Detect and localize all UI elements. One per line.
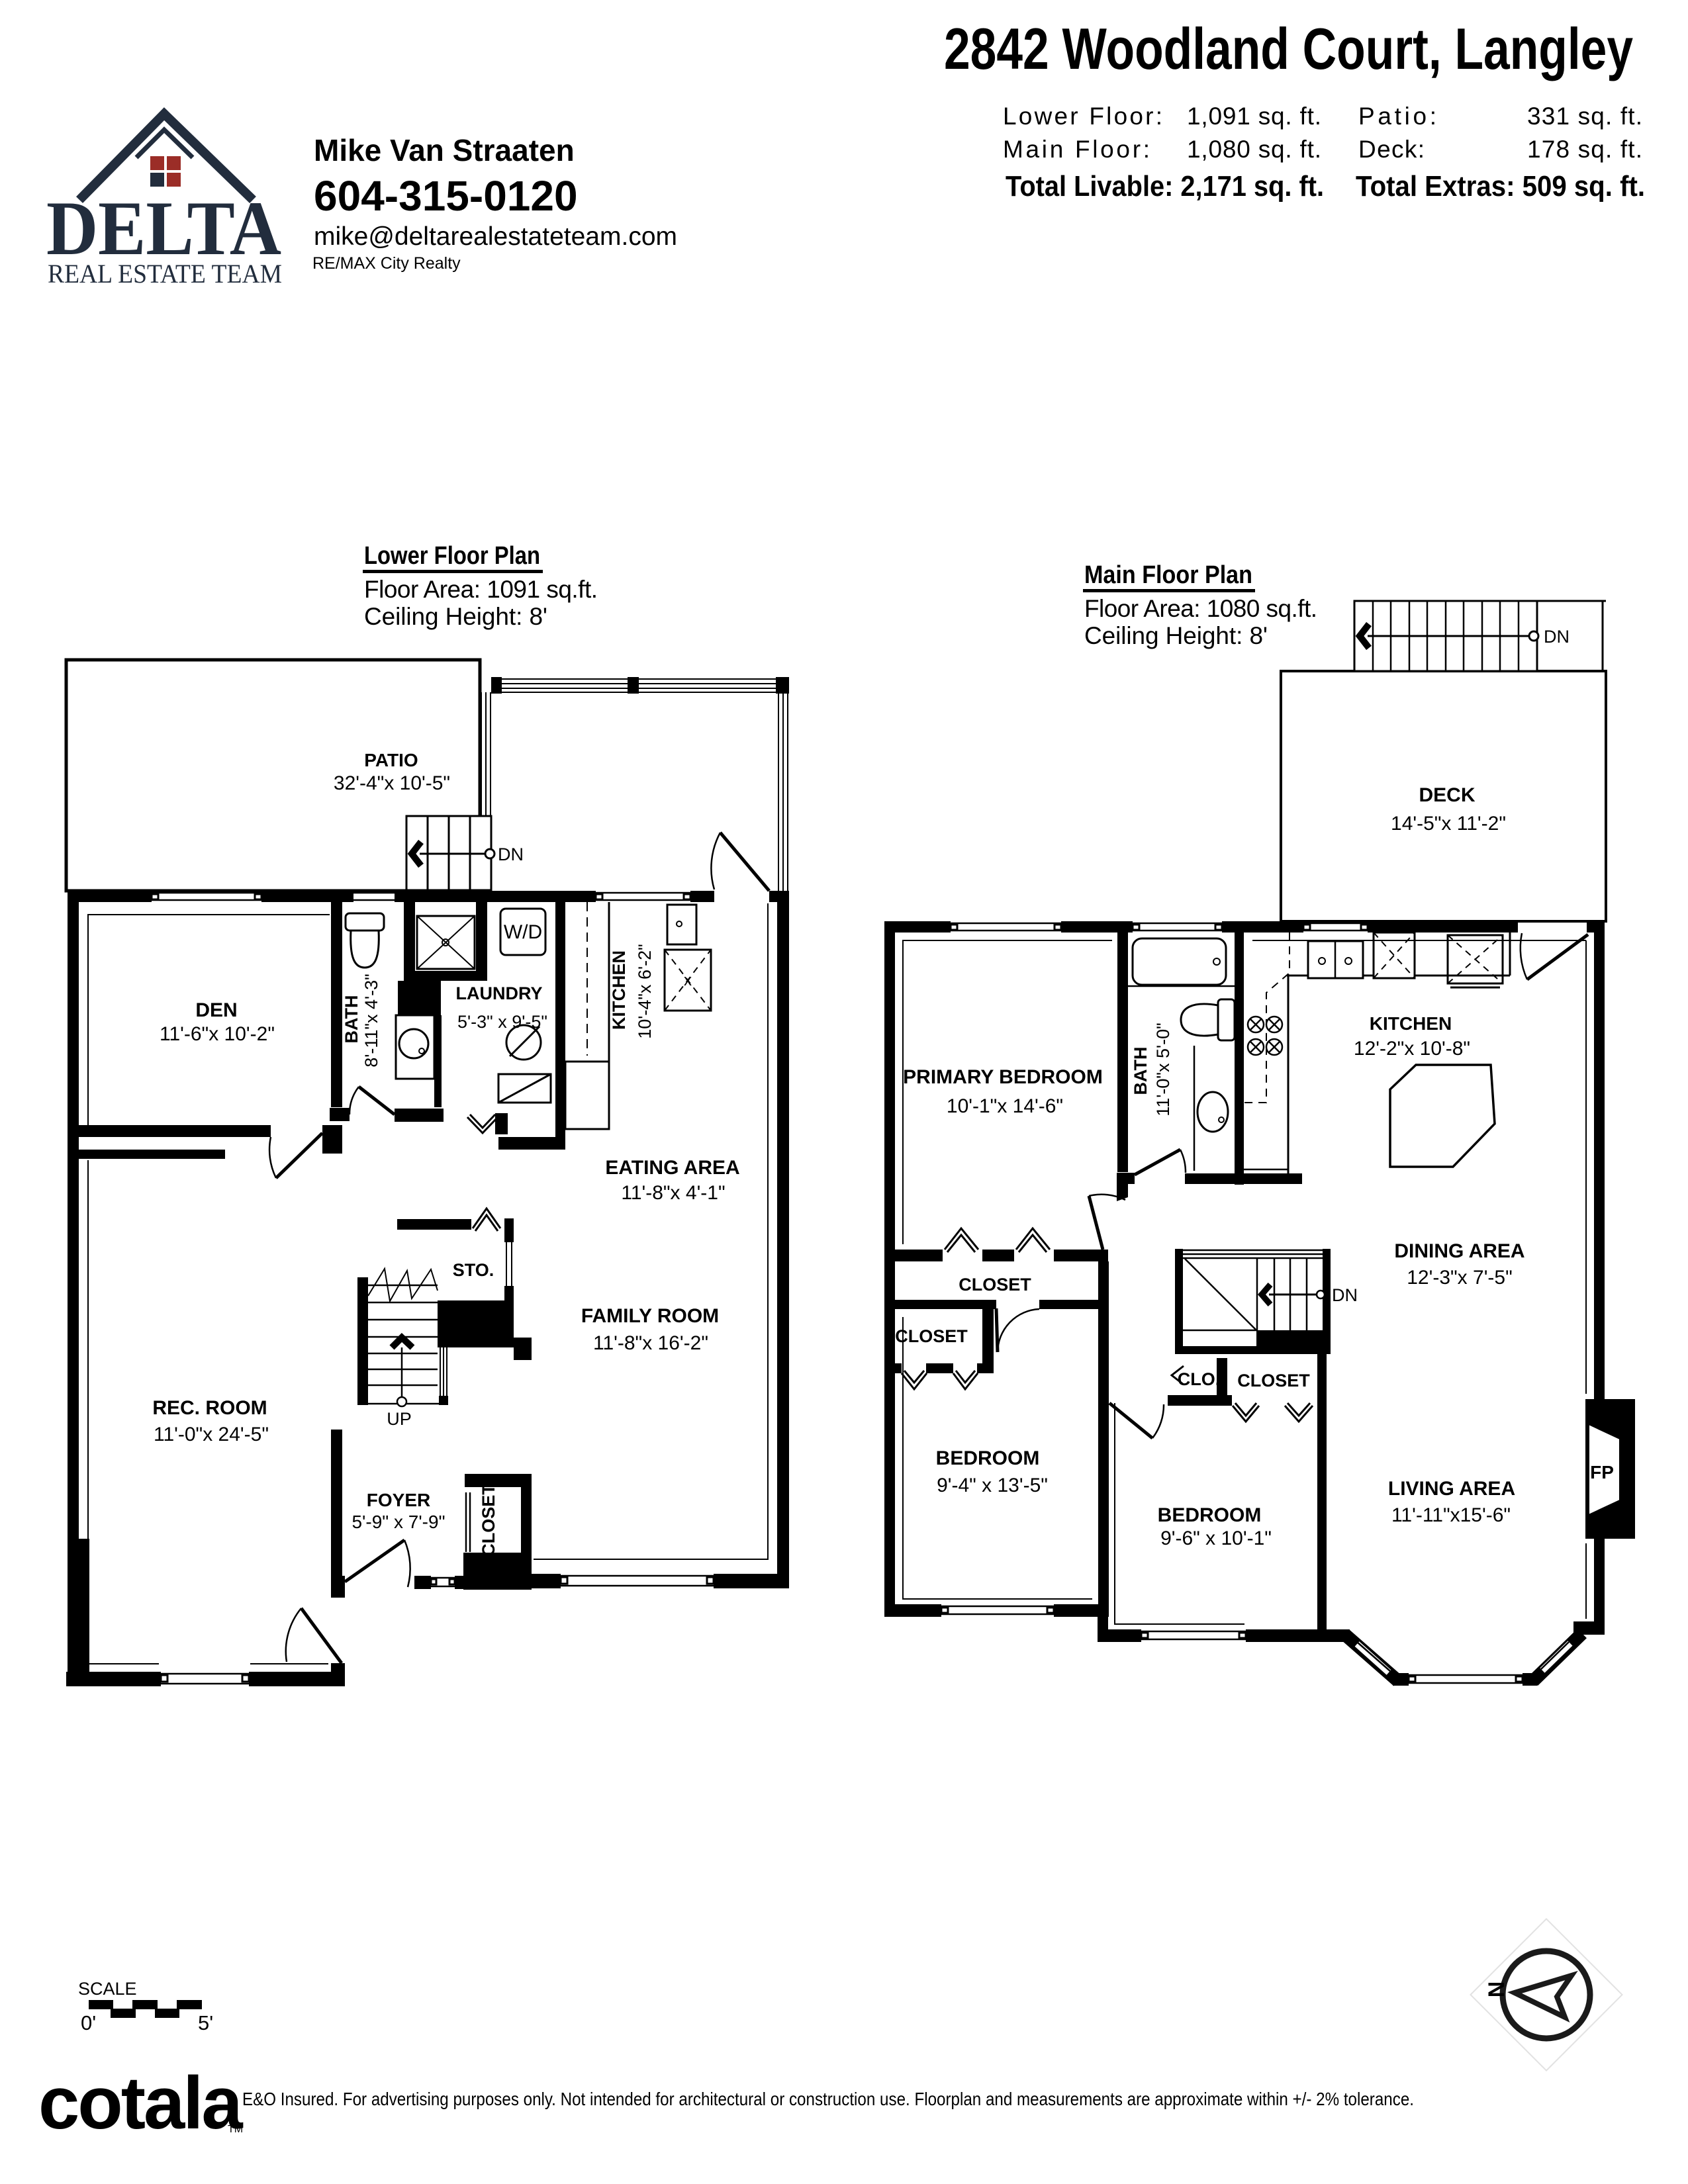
svg-text:9'-6" x 10'-1": 9'-6" x 10'-1" (1160, 1527, 1272, 1549)
svg-text:EATING AREA: EATING AREA (605, 1157, 739, 1179)
svg-text:DN: DN (1544, 627, 1570, 647)
svg-text:DINING AREA: DINING AREA (1394, 1240, 1524, 1262)
svg-text:11'-8"x 16'-2": 11'-8"x 16'-2" (593, 1332, 708, 1354)
svg-text:CLOSET: CLOSET (1237, 1371, 1310, 1390)
svg-text:Mike Van Straaten: Mike Van Straaten (314, 133, 575, 167)
svg-text:LAUNDRY: LAUNDRY (456, 983, 543, 1003)
svg-text:mike@deltarealestateteam.com: mike@deltarealestateteam.com (314, 222, 677, 251)
svg-text:CLO.: CLO. (1178, 1369, 1221, 1389)
svg-text:CLOSET: CLOSET (895, 1326, 968, 1346)
svg-text:331 sq. ft.: 331 sq. ft. (1527, 103, 1642, 130)
svg-text:DECK: DECK (1419, 784, 1475, 806)
svg-text:Deck:: Deck: (1358, 136, 1425, 163)
svg-text:BEDROOM: BEDROOM (1158, 1504, 1262, 1526)
svg-text:E&O Insured. For advertising p: E&O Insured. For advertising purposes on… (242, 2089, 1414, 2109)
svg-text:DN: DN (1332, 1285, 1358, 1305)
svg-text:14'-5"x 11'-2": 14'-5"x 11'-2" (1391, 813, 1506, 835)
svg-text:Main Floor:: Main Floor: (1003, 136, 1150, 163)
svg-text:Floor Area: 1091 sq.ft.: Floor Area: 1091 sq.ft. (364, 576, 598, 603)
svg-text:W/D: W/D (504, 921, 542, 943)
svg-text:1,080 sq. ft.: 1,080 sq. ft. (1187, 136, 1321, 163)
svg-text:32'-4"x 10'-5": 32'-4"x 10'-5" (334, 772, 450, 794)
svg-text:REC. ROOM: REC. ROOM (152, 1397, 267, 1419)
svg-text:RE/MAX City Realty: RE/MAX City Realty (312, 254, 461, 273)
svg-text:Total Livable: 2,171 sq. ft.: Total Livable: 2,171 sq. ft. (1006, 170, 1324, 203)
svg-text:UP: UP (387, 1409, 412, 1429)
svg-text:KITCHEN: KITCHEN (1370, 1013, 1452, 1034)
svg-text:604-315-0120: 604-315-0120 (314, 172, 578, 220)
svg-text:10'-1"x 14'-6": 10'-1"x 14'-6" (947, 1095, 1063, 1117)
svg-text:Total Extras: 509 sq. ft.: Total Extras: 509 sq. ft. (1356, 170, 1645, 203)
svg-text:Lower Floor Plan: Lower Floor Plan (364, 542, 540, 570)
svg-text:x: x (684, 972, 692, 989)
svg-text:9'-4" x 13'-5": 9'-4" x 13'-5" (937, 1475, 1048, 1496)
svg-text:KITCHEN: KITCHEN (609, 950, 629, 1030)
svg-text:DEN: DEN (195, 999, 237, 1021)
svg-text:11'-11"x15'-6": 11'-11"x15'-6" (1391, 1504, 1511, 1526)
svg-text:Patio:: Patio: (1358, 103, 1436, 130)
svg-text:Ceiling Height: 8': Ceiling Height: 8' (1084, 622, 1268, 649)
svg-text:PRIMARY BEDROOM: PRIMARY BEDROOM (903, 1066, 1103, 1088)
svg-text:REAL ESTATE TEAM: REAL ESTATE TEAM (48, 259, 282, 289)
svg-text:11'-8"x 4'-1": 11'-8"x 4'-1" (621, 1182, 725, 1204)
svg-text:11'-0"x 24'-5": 11'-0"x 24'-5" (154, 1424, 269, 1445)
svg-text:FOYER: FOYER (367, 1490, 430, 1510)
svg-text:0': 0' (81, 2011, 96, 2034)
svg-text:12'-3"x 7'-5": 12'-3"x 7'-5" (1407, 1267, 1513, 1289)
svg-text:SCALE: SCALE (78, 1979, 137, 1999)
svg-text:BATH: BATH (1131, 1047, 1150, 1095)
svg-text:10'-4"x 6'-2": 10'-4"x 6'-2" (635, 944, 655, 1039)
svg-text:8'-11"x 4'-3": 8'-11"x 4'-3" (361, 974, 381, 1068)
svg-text:STO.: STO. (453, 1260, 494, 1280)
svg-text:1,091 sq. ft.: 1,091 sq. ft. (1187, 103, 1321, 130)
svg-text:TM: TM (228, 2124, 243, 2135)
svg-text:PATIO: PATIO (364, 750, 418, 770)
svg-text:Floor Area: 1080 sq.ft.: Floor Area: 1080 sq.ft. (1084, 595, 1317, 622)
svg-text:5': 5' (198, 2011, 213, 2034)
svg-text:cotala: cotala (38, 2062, 243, 2144)
svg-text:LIVING AREA: LIVING AREA (1388, 1478, 1515, 1500)
svg-text:CLOSET: CLOSET (959, 1275, 1031, 1295)
svg-text:N: N (1484, 1981, 1509, 1998)
svg-text:BATH: BATH (342, 995, 361, 1044)
svg-text:Main Floor Plan: Main Floor Plan (1084, 561, 1252, 589)
svg-text:11'-0"x 5'-0": 11'-0"x 5'-0" (1153, 1023, 1173, 1116)
svg-text:Lower Floor:: Lower Floor: (1003, 103, 1162, 130)
svg-text:2842 Woodland Court, Langley: 2842 Woodland Court, Langley (944, 16, 1633, 81)
svg-text:CLOSET: CLOSET (479, 1484, 498, 1557)
svg-text:Ceiling Height: 8': Ceiling Height: 8' (364, 603, 547, 630)
svg-text:BEDROOM: BEDROOM (936, 1447, 1040, 1469)
svg-text:12'-2"x 10'-8": 12'-2"x 10'-8" (1354, 1038, 1470, 1060)
svg-text:11'-6"x 10'-2": 11'-6"x 10'-2" (160, 1023, 275, 1045)
svg-text:FAMILY ROOM: FAMILY ROOM (581, 1305, 719, 1327)
svg-text:FP: FP (1590, 1462, 1614, 1482)
svg-text:DN: DN (498, 844, 524, 864)
svg-text:5'-9" x 7'-9": 5'-9" x 7'-9" (352, 1512, 445, 1532)
svg-text:178 sq. ft.: 178 sq. ft. (1527, 136, 1642, 163)
